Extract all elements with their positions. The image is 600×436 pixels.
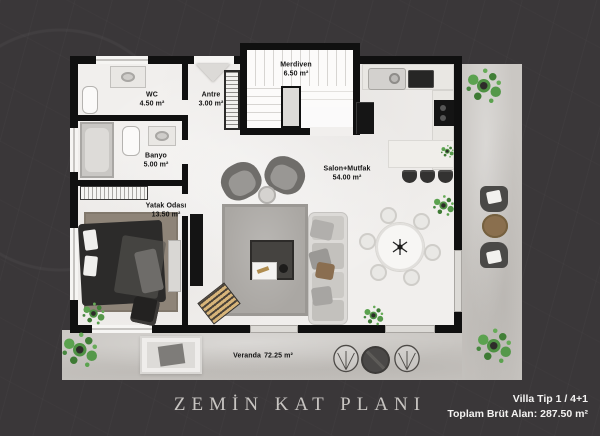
plant-icon [439, 143, 456, 160]
room-area: 72.25 m² [264, 353, 293, 362]
entry-opening [194, 56, 234, 64]
room-name: Yatak Odası [146, 202, 187, 211]
pillow [315, 262, 336, 281]
plant-icon [471, 323, 516, 368]
bath-sink [148, 126, 176, 146]
window [70, 228, 78, 300]
room-label-banyo: Banyo 5.00 m² [144, 152, 169, 170]
plant-icon [461, 63, 506, 108]
room-name: Banyo [145, 152, 167, 161]
wc-sink [110, 66, 146, 88]
decor-bowl [279, 264, 288, 273]
room-name: Salon+Mutfak [324, 165, 371, 174]
bed-pillow [83, 255, 98, 276]
window [70, 128, 78, 172]
toilet-icon [122, 126, 140, 156]
plant-icon [430, 192, 457, 219]
stair-treads [247, 86, 281, 128]
veranda-table [361, 346, 390, 374]
stair-shaft [281, 86, 301, 128]
bedroom-chair [130, 296, 161, 327]
kitchen-sink [368, 68, 406, 90]
dresser [168, 240, 181, 292]
egg-chair-icon [332, 344, 360, 373]
wall [355, 56, 462, 64]
wardrobe [80, 186, 148, 200]
dining-chair [413, 213, 430, 230]
wall [182, 64, 188, 100]
room-area: 4.50 m² [140, 100, 165, 109]
room-name: Veranda [233, 353, 261, 362]
room-label-salon-mutfak: Salon+Mutfak 54.00 m² [324, 165, 371, 183]
plant-icon [57, 327, 102, 372]
tray [252, 262, 277, 280]
wall [182, 186, 188, 194]
room-area: 3.00 m² [199, 100, 224, 109]
room-label-veranda: Veranda 72.25 m² [233, 353, 293, 362]
patio-chair [480, 186, 508, 212]
room-label-wc: WC 4.50 m² [140, 91, 165, 109]
room-label-yatak-odasi: Yatak Odası 13.50 m² [146, 202, 187, 220]
window [96, 56, 148, 64]
total-area-label: Toplam Brüt Alan: 287.50 m² [447, 407, 588, 422]
hall-cabinet [224, 70, 240, 130]
toilet-icon [82, 86, 98, 114]
room-label-merdiven: Merdiven 6.50 m² [280, 61, 312, 79]
bed-pillow [83, 229, 99, 251]
daybed [140, 336, 202, 374]
dining-chair [424, 244, 441, 261]
dining-chair [380, 207, 397, 224]
stair-treads [301, 86, 353, 107]
plan-info: Villa Tip 1 / 4+1 Toplam Brüt Alan: 287.… [447, 392, 588, 422]
side-table [258, 186, 276, 204]
floor-plan-canvas: Merdiven 6.50 m² WC 4.50 m² Antre 3.00 m… [0, 0, 600, 436]
dining-chair [403, 269, 420, 286]
wall [182, 216, 188, 333]
sliding-door [250, 325, 298, 333]
wall [182, 121, 188, 140]
fridge-icon [356, 102, 374, 134]
patio-chair [480, 242, 508, 268]
pillow [311, 286, 333, 307]
plant-icon [360, 302, 386, 328]
room-name: Antre [202, 91, 221, 100]
sliding-door [454, 250, 462, 312]
villa-type-label: Villa Tip 1 / 4+1 [447, 392, 588, 407]
plant-icon [79, 299, 108, 328]
egg-chair-icon [393, 344, 421, 373]
sliding-door [385, 325, 435, 333]
cooktop-icon [434, 100, 454, 126]
stair-opening [310, 127, 353, 136]
room-label-antre: Antre 3.00 m² [199, 91, 224, 109]
room-name: Merdiven [280, 61, 312, 70]
dining-chair [370, 264, 387, 281]
patio-table [482, 214, 508, 238]
room-area: 6.50 m² [284, 70, 309, 79]
room-area: 13.50 m² [152, 211, 181, 220]
stove-icon [408, 70, 434, 88]
table-decor-icon [390, 237, 410, 257]
room-area: 5.00 m² [144, 161, 169, 170]
dining-chair [359, 233, 376, 250]
tv-unit [190, 214, 203, 286]
shower-tub [80, 122, 114, 178]
room-area: 54.00 m² [333, 174, 362, 183]
room-name: WC [146, 91, 158, 100]
wall [77, 115, 188, 121]
